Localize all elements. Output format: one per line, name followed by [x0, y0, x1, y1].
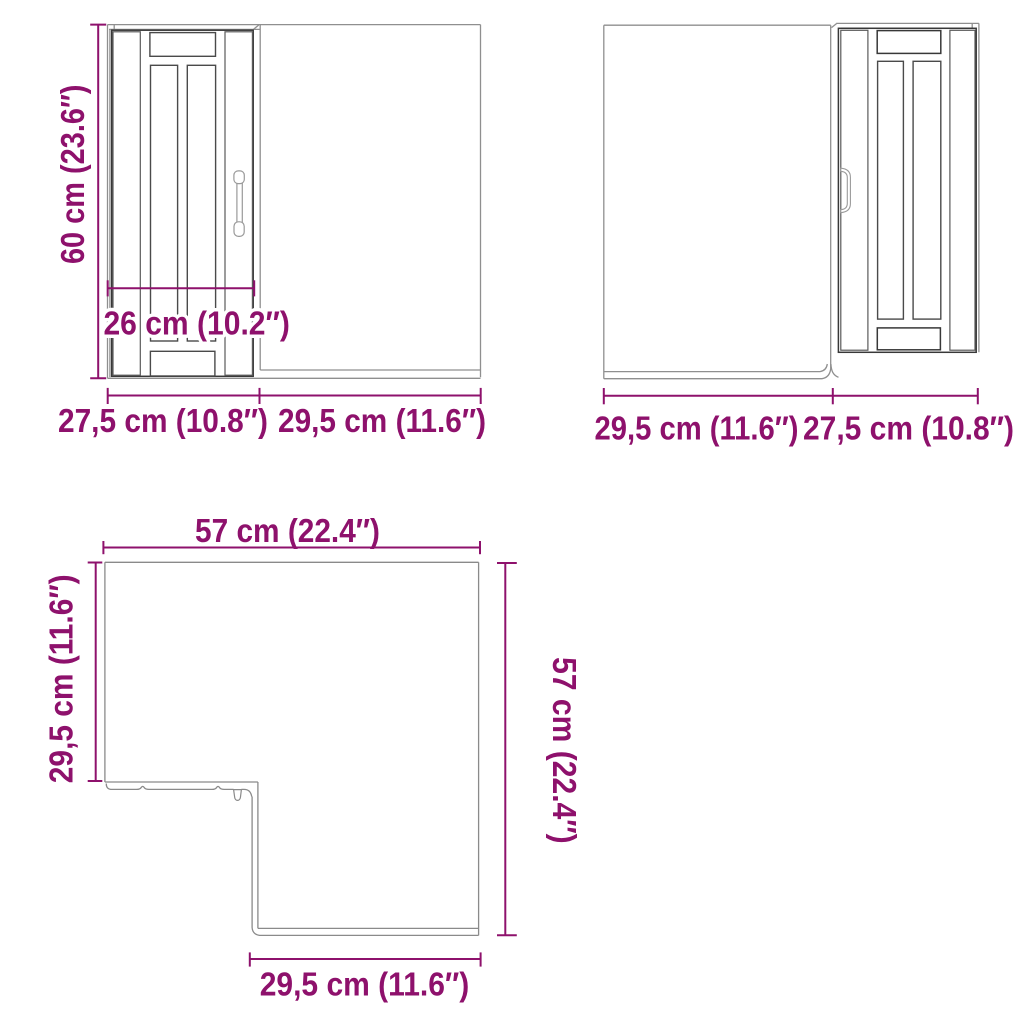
svg-text:29,5 cm (11.6″): 29,5 cm (11.6″) [278, 402, 486, 439]
svg-text:57 cm (22.4″): 57 cm (22.4″) [546, 657, 583, 844]
svg-text:27,5 cm (10.8″): 27,5 cm (10.8″) [58, 402, 268, 439]
svg-text:29,5 cm (11.6″): 29,5 cm (11.6″) [595, 409, 799, 446]
svg-text:29,5 cm (11.6″): 29,5 cm (11.6″) [260, 966, 470, 1003]
svg-text:29,5 cm (11.6″): 29,5 cm (11.6″) [43, 574, 80, 783]
svg-text:27,5 cm (10.8″): 27,5 cm (10.8″) [803, 409, 1014, 446]
svg-text:57 cm (22.4″): 57 cm (22.4″) [195, 512, 380, 549]
svg-text:26 cm (10.2″): 26 cm (10.2″) [103, 305, 290, 342]
svg-text:60 cm (23.6″): 60 cm (23.6″) [54, 85, 91, 264]
